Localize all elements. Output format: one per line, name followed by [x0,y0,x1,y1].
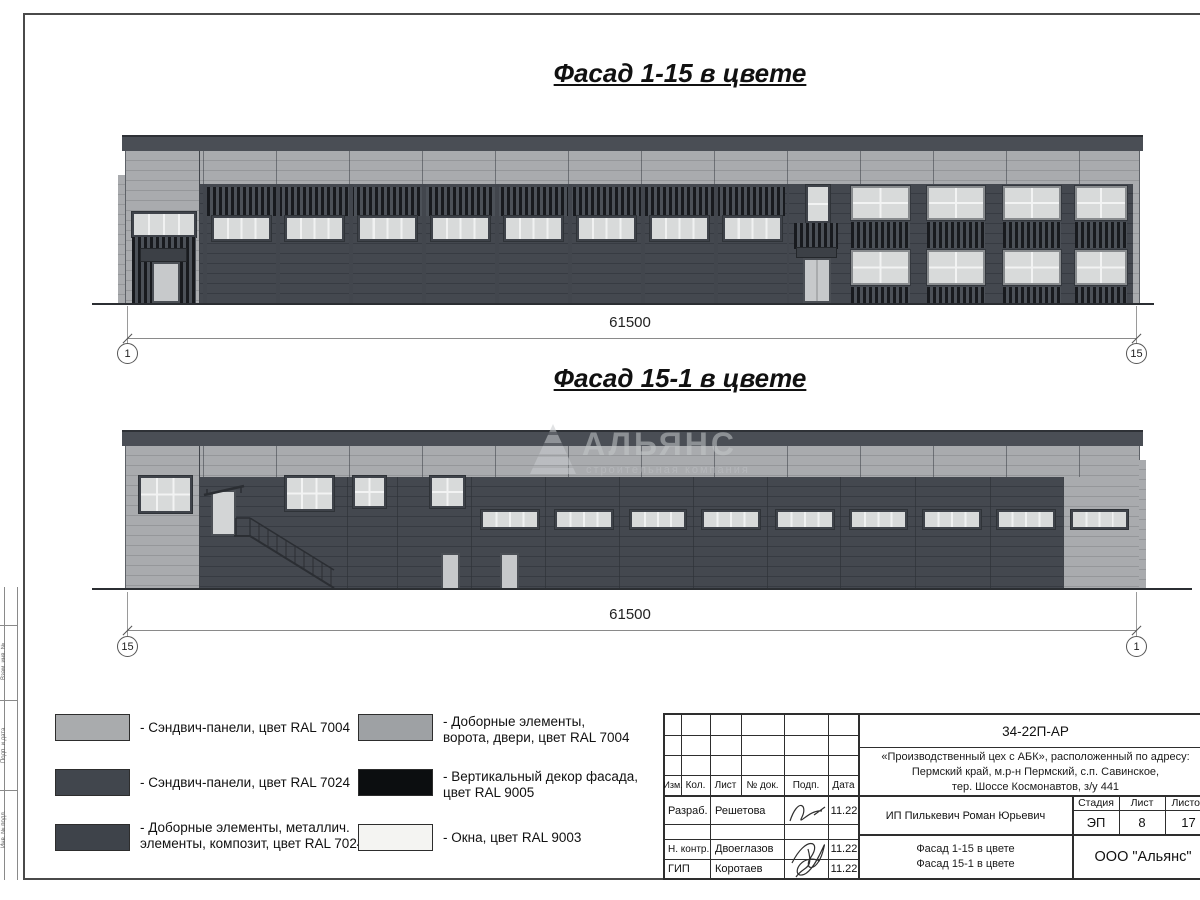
legend-label: - Вертикальный декор фасада, цвет RAL 90… [443,769,643,801]
margin-divider [0,625,18,626]
tb-client: ИП Пилькевич Роман Юрьевич [859,797,1072,834]
abk-stripes-mid [1003,222,1061,248]
tb-name-korotaev: Коротаев [712,859,782,878]
bay-joint [840,477,841,590]
left-corner-trim [118,175,125,303]
tb-col-kol: Кол. [681,775,710,795]
strip-window [555,510,613,529]
tb-role-gip: ГИП [666,859,710,878]
abk-stripes-low [1003,287,1061,303]
legend-label: - Сэндвич-панели, цвет RAL 7004 [140,720,355,736]
legend-swatch [358,769,433,796]
panel-joints-light [203,151,1135,184]
service-door [441,553,460,590]
tb-sheet-title: Фасад 1-15 в цвете Фасад 15-1 в цвете [859,836,1072,878]
abk-stripes-low [1075,287,1127,303]
abk-window-lower [927,250,985,285]
tb-stage-value: ЭП [1073,810,1119,834]
axis-marker-15: 15 [117,636,138,657]
margin-divider [0,700,18,701]
dimension-line [127,630,1137,631]
legend: - Сэндвич-панели, цвет RAL 7004 - Сэндви… [55,705,655,865]
strip-window [285,216,344,241]
legend-swatch [55,769,130,796]
tb-sheet-title-line1: Фасад 1-15 в цвете [859,842,1072,857]
end-section-window [139,476,192,513]
service-door [500,553,519,590]
watermark-name: АЛЬЯНС [582,426,737,463]
tb-name-reshetova: Решетова [712,797,782,824]
extension-line [127,306,128,348]
facade-1-15-title: Фасад 1-15 в цвете [400,58,960,89]
abk-door-stripes [794,223,838,249]
abk-stripes-low [927,287,985,303]
right-end-light-section [1063,477,1139,590]
dimension-value-bottom: 61500 [400,606,860,623]
strip-window [776,510,834,529]
strip-window [923,510,981,529]
extension-line [1136,306,1137,348]
tb-sheets-label: Листов [1165,795,1200,810]
abk-stripes-mid [851,222,910,248]
tb-role-ncontr: Н. контр. [666,839,710,859]
office-window [353,476,386,508]
tb-col-doc: № док. [741,775,784,795]
ground-line-bottom [92,588,1192,590]
tb-sheet-title-line2: Фасад 15-1 в цвете [859,857,1072,872]
frame-left-border [23,13,25,880]
strip-window [358,216,417,241]
signature-scribble [784,791,829,878]
tb-line [665,735,859,736]
parapet [122,135,1143,151]
legend-label: - Сэндвич-панели, цвет RAL 7024 [140,775,365,791]
tb-name-dvoeglazov: Двоеглазов [712,839,782,859]
tb-sheet-label: Лист [1119,795,1165,810]
left-end-light-section [126,446,200,590]
legend-swatch [358,824,433,851]
ground-line-top [92,303,1154,305]
abk-stripes-low [851,287,910,303]
legend-swatch [358,714,433,741]
axis-marker-1: 1 [117,343,138,364]
abk-entrance-door [803,258,831,303]
bay-joint [990,477,991,590]
strip-window [723,216,782,241]
tb-role-razrab: Разраб. [666,797,710,824]
watermark-logo-triangle-icon [530,424,576,474]
tb-sheet-value: 8 [1119,810,1165,834]
entrance-canopy [140,248,187,262]
strip-window [630,510,686,529]
tb-doc-number: 34-22П-АР [859,715,1200,747]
axis-marker-1: 1 [1126,636,1147,657]
tb-project-line1: «Производственный цех с АБК», расположен… [859,750,1200,765]
strip-window [212,216,271,241]
bay-joint [915,477,916,590]
abk-window-lower [1003,250,1061,285]
legend-label: - Окна, цвет RAL 9003 [443,830,643,846]
strip-window [481,510,539,529]
abk-window-upper [851,186,910,220]
strip-window [850,510,907,529]
strip-window [997,510,1055,529]
margin-divider [0,790,18,791]
tb-date-3: 11.22 [829,859,859,878]
strip-window [702,510,760,529]
margin-label-inv: Инв. № подл. [1,808,7,848]
office-window [430,476,465,508]
right-corner-trim [1139,460,1146,590]
margin-column: Взам. инв. № Подп. и дата Инв. № подл. [0,587,18,880]
bay-joint [545,477,546,590]
strip-window [650,216,709,241]
tb-project-line2: Пермский край, м.р-н Пермский, с.п. Сави… [859,765,1200,780]
tb-col-list: Лист [710,775,741,795]
abk-stripes-mid [1075,222,1127,248]
dimension-value-top: 61500 [400,314,860,331]
abk-tall-window [806,185,830,223]
bay-joint [397,477,398,590]
facade-1-15-drawing [125,135,1140,305]
watermark-subtitle: строительная компания [586,464,750,476]
abk-door-canopy [796,247,837,258]
legend-swatch [55,714,130,741]
abk-window-upper [1003,186,1061,220]
tb-line [665,824,859,825]
axis-marker-15: 15 [1126,343,1147,364]
legend-label: - Доборные элементы, ворота, двери, цвет… [443,714,633,746]
margin-label-podp: Подп. и дата [1,723,7,763]
title-block: Изм. Кол. Лист № док. Подп. Дата Разраб.… [663,713,1200,880]
bay-joints-dark [203,184,789,303]
tb-col-izm: Изм. [665,775,681,795]
abk-window-upper [1075,186,1127,220]
tb-project-line3: тер. Шоссе Космонавтов, з/у 441 [859,780,1200,795]
frame-top-border [23,13,1200,15]
tb-date-1: 11.22 [829,797,859,824]
bay-joint [767,477,768,590]
bay-joint [693,477,694,590]
tb-line [665,755,859,756]
abk-window-upper [927,186,985,220]
right-corner-trim [1133,184,1139,303]
tb-date-2: 11.22 [829,839,859,859]
company-watermark: АЛЬЯНС строительная компания [530,422,830,484]
tb-col-data: Дата [828,775,859,795]
strip-window [504,216,563,241]
abk-window-lower [851,250,910,285]
strip-window [1071,510,1128,529]
bay-joint [619,477,620,590]
sheet-page: { "colors": { "ral7004": "#a9abae", "ral… [0,0,1200,900]
abk-stripes-mid [927,222,985,248]
strip-window [577,216,636,241]
legend-label: - Доборные элементы, металлич. элементы,… [140,820,370,852]
tb-company: ООО "Альянс" [1074,836,1200,878]
entrance-strip-window [132,212,196,237]
margin-label-vzam: Взам. инв. № [1,640,7,680]
strip-window [431,216,490,241]
tb-project-name: «Производственный цех с АБК», расположен… [859,748,1200,795]
exterior-stair [200,478,350,590]
tb-stage-label: Стадия [1073,795,1119,810]
tb-sheets-value: 17 [1165,810,1200,834]
dimension-line [127,338,1137,339]
facade-15-1-title: Фасад 15-1 в цвете [400,363,960,394]
entrance-door [152,262,180,303]
abk-window-lower [1075,250,1127,285]
facade-15-1-drawing: АЛЬЯНС строительная компания [125,430,1140,590]
legend-swatch [55,824,130,851]
bay-joint [471,477,472,590]
